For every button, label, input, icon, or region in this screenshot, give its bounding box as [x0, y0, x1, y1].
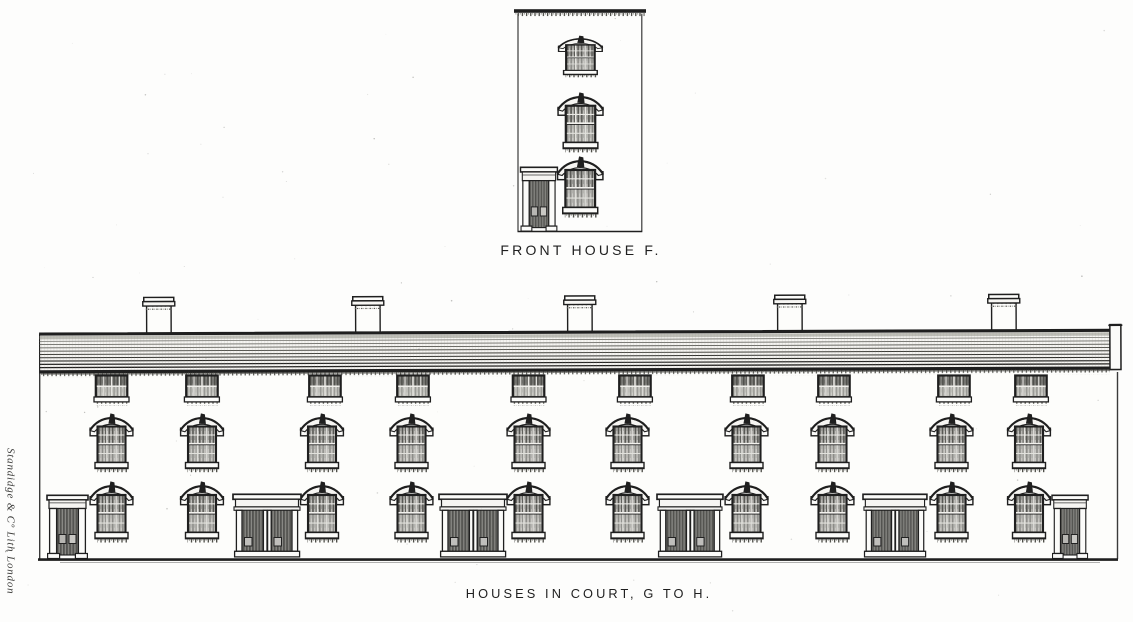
- svg-text:FRONT HOUSE F.: FRONT HOUSE F.: [500, 242, 661, 258]
- svg-text:Standidge & Cº Lith̨ London: Standidge & Cº Lith̨ London: [5, 448, 17, 594]
- svg-text:HOUSES IN COURT, G TO H.: HOUSES IN COURT, G TO H.: [466, 586, 712, 601]
